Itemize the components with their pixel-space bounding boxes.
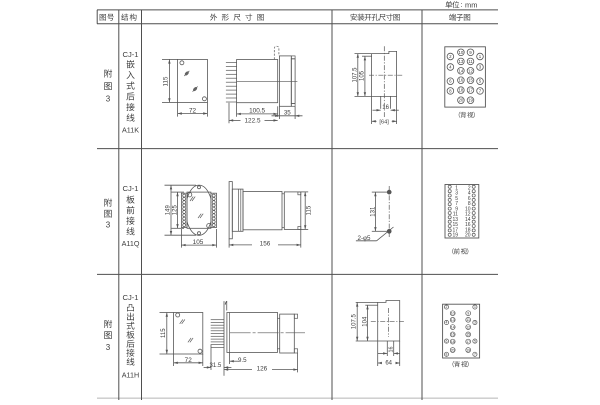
svg-text:2-φ5: 2-φ5 [358,235,372,242]
svg-text:16: 16 [458,78,463,83]
svg-text:19: 19 [466,348,470,352]
svg-text:15: 15 [468,78,473,83]
svg-text:14: 14 [458,68,463,73]
svg-text:115: 115 [307,205,313,215]
svg-text:17: 17 [468,88,473,93]
svg-text:15: 15 [466,333,470,337]
svg-text:3: 3 [106,343,111,352]
svg-text:31.5: 31.5 [210,363,222,369]
svg-text:18: 18 [458,88,463,93]
svg-text:5: 5 [474,339,476,343]
svg-text:64: 64 [385,361,392,367]
svg-text:8: 8 [446,352,448,356]
svg-text:[64]: [64] [379,119,389,125]
svg-text:1: 1 [474,305,476,309]
svg-text:35: 35 [284,109,291,116]
svg-text:149: 149 [165,205,171,216]
svg-text:115: 115 [163,76,170,86]
svg-text:12: 12 [468,68,473,73]
svg-text:16: 16 [382,105,389,111]
svg-text:mm: mm [465,0,477,9]
svg-text:12: 12 [466,325,470,329]
svg-text:72: 72 [189,107,197,114]
svg-text:72: 72 [185,357,193,364]
svg-text:4: 4 [446,321,448,325]
svg-text:CJ-1: CJ-1 [122,293,138,302]
svg-text:131: 131 [370,206,376,217]
svg-text:6: 6 [446,339,448,343]
svg-text:107.5: 107.5 [352,314,358,330]
svg-text:105: 105 [360,70,366,81]
svg-text:9: 9 [467,311,469,315]
svg-text:156: 156 [260,240,271,247]
svg-text:122.5: 122.5 [245,118,261,125]
svg-text:A11H: A11H [122,371,139,380]
svg-text:20: 20 [451,348,455,352]
svg-text:115: 115 [161,328,167,338]
svg-text:9.5: 9.5 [238,357,247,364]
svg-text:20: 20 [458,98,463,103]
svg-text:16: 16 [451,333,455,337]
svg-text:3: 3 [474,321,476,325]
svg-text:7: 7 [474,352,476,356]
svg-text:CJ-1: CJ-1 [122,184,138,193]
svg-text:100.5: 100.5 [249,108,265,115]
svg-text:105: 105 [193,239,204,246]
svg-text:2: 2 [446,305,448,309]
svg-text:17: 17 [466,340,470,344]
svg-text:20: 20 [465,233,471,239]
svg-text:13: 13 [458,59,463,64]
svg-text:19: 19 [452,233,458,239]
svg-text:10: 10 [451,311,455,315]
svg-text:13: 13 [451,318,455,322]
svg-text::: : [461,0,463,9]
svg-text:16: 16 [388,347,394,353]
svg-text:125: 125 [172,205,178,216]
svg-text:126: 126 [257,365,268,372]
svg-text:107.5: 107.5 [352,67,358,83]
svg-text:11: 11 [466,318,470,322]
svg-text:19: 19 [468,98,473,103]
svg-text:A11K: A11K [122,126,139,135]
svg-text:18: 18 [451,340,455,344]
svg-text:3: 3 [106,95,111,104]
svg-text:CJ-1: CJ-1 [122,50,138,59]
svg-text:11: 11 [468,59,473,64]
svg-text:3: 3 [106,221,111,230]
svg-text:10: 10 [458,50,463,55]
svg-text:104: 104 [363,316,369,327]
svg-text:14: 14 [451,325,455,329]
svg-text:A11Q: A11Q [122,239,140,248]
